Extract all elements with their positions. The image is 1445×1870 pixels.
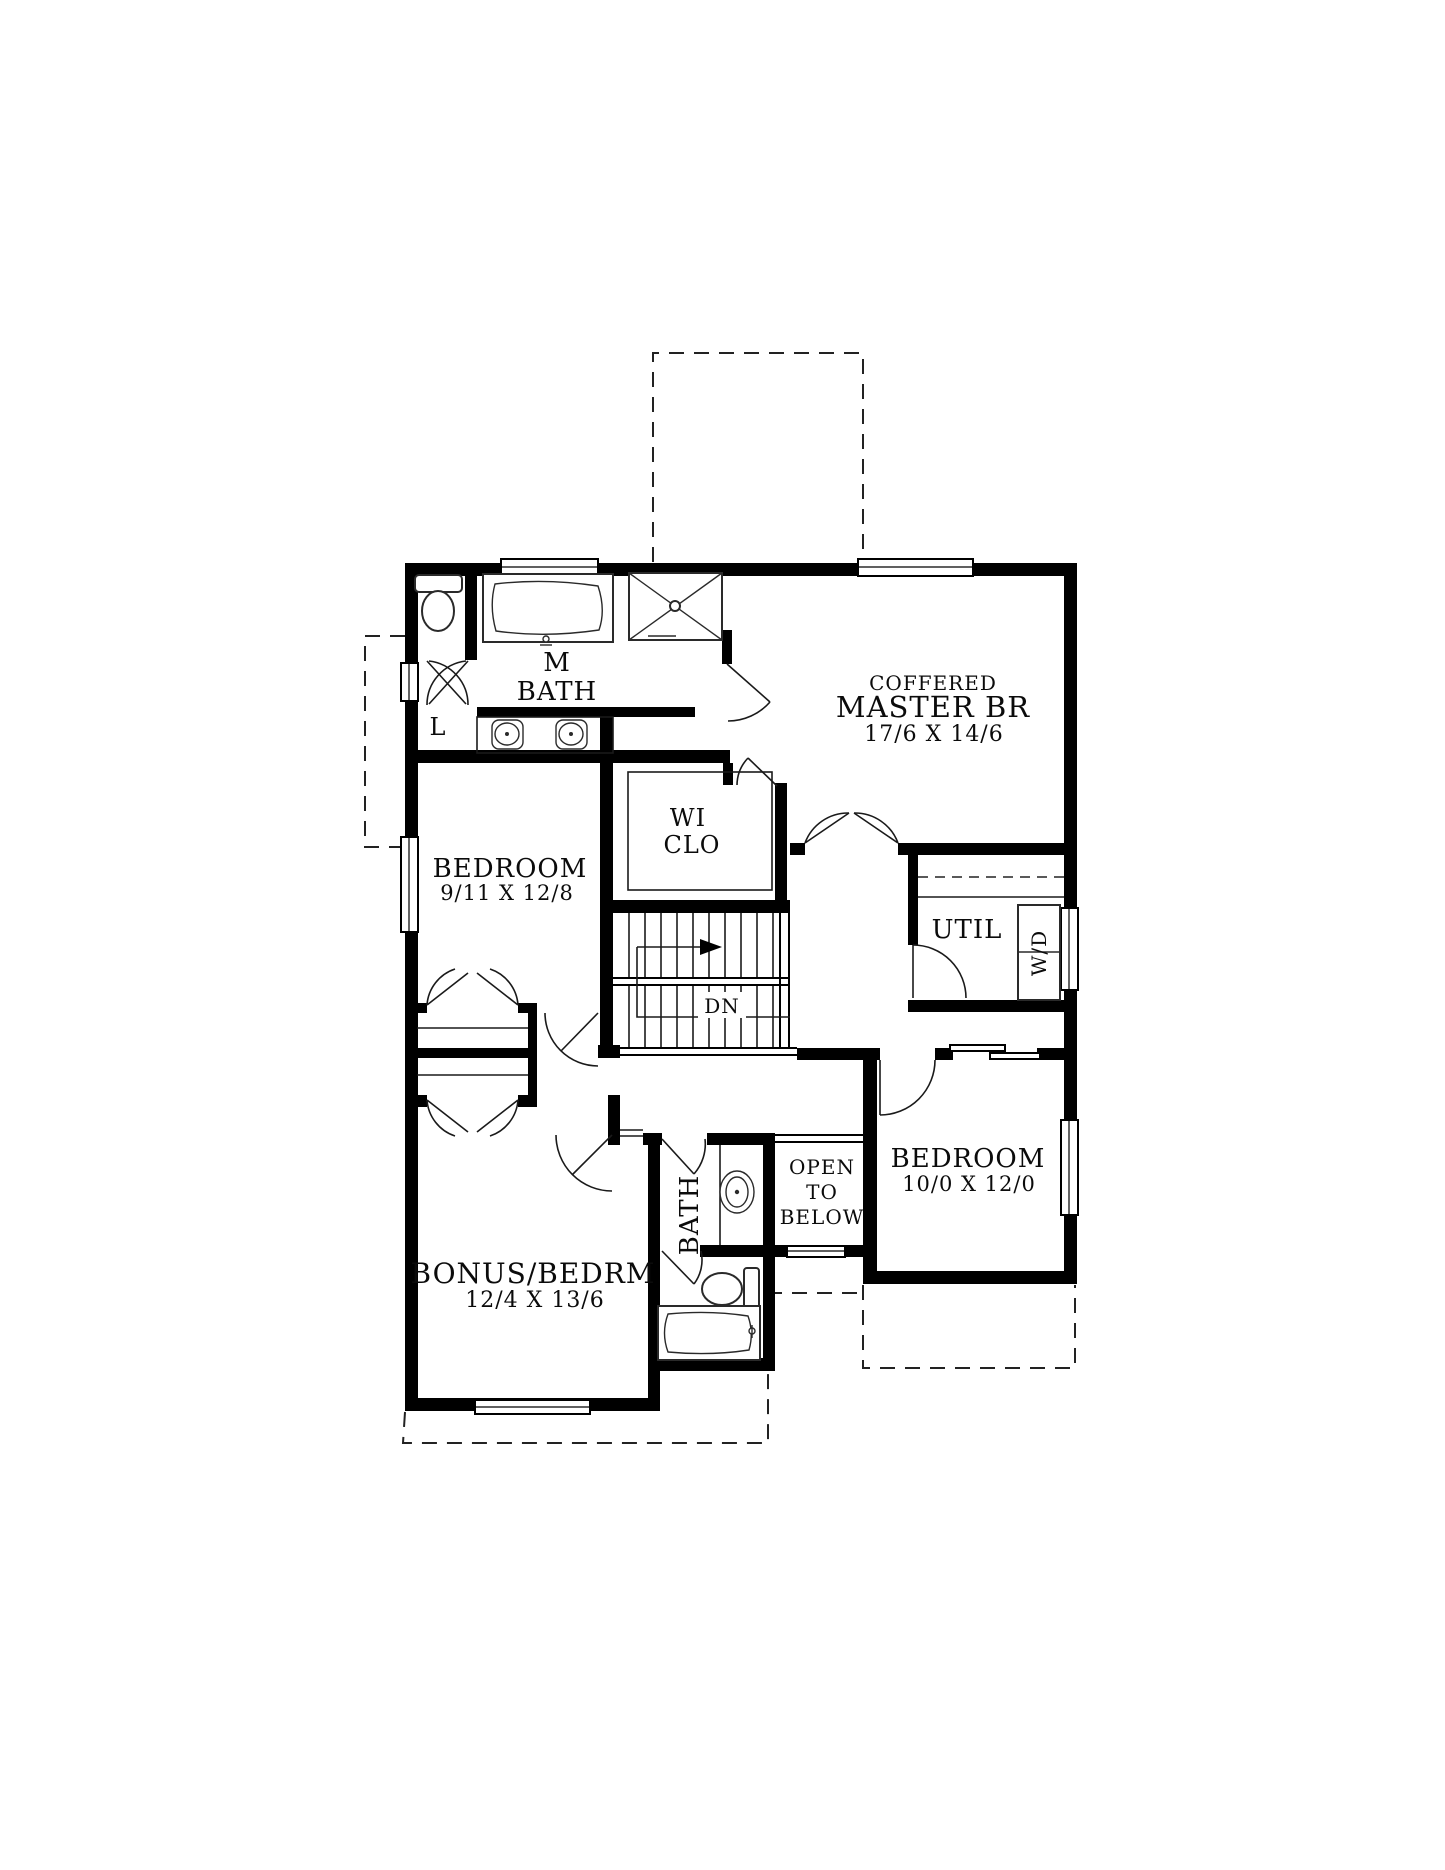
mbath-vanity	[477, 717, 613, 753]
linen-label: L	[430, 713, 447, 741]
door-arc	[913, 945, 966, 998]
door-arc	[429, 661, 468, 705]
upper-dashed-box	[653, 353, 863, 562]
door-arc	[727, 664, 770, 721]
window-icon	[787, 1246, 845, 1257]
stair-treads	[629, 913, 773, 1048]
sink-icon	[556, 720, 587, 749]
door-arc	[556, 1135, 612, 1191]
double-door-arcs	[805, 813, 898, 843]
open-below-line1: OPEN	[789, 1155, 855, 1179]
window-icon	[1061, 908, 1078, 990]
window-icon	[401, 663, 418, 701]
bath-vanity	[720, 1145, 754, 1245]
bedroom1-name-label: BEDROOM	[433, 854, 588, 884]
stairs-dn-label: DN	[704, 994, 740, 1018]
mbath-label-line1: M	[543, 648, 571, 678]
bathtub-icon	[483, 574, 613, 645]
mbath-label-line2: BATH	[517, 677, 597, 707]
closet-double-doors	[427, 969, 518, 1005]
stair-rails	[613, 913, 797, 1055]
wiclo-label-line2: CLO	[664, 831, 721, 859]
bedroom2-name-label: BEDROOM	[891, 1144, 1046, 1174]
door-arc	[880, 1060, 935, 1115]
sink-icon	[492, 720, 523, 749]
closet-double-doors	[427, 1100, 518, 1136]
window-icon	[475, 1400, 590, 1414]
left-dashed-box	[365, 636, 405, 847]
toilet-icon	[415, 575, 462, 631]
open-below-railing	[775, 1135, 863, 1142]
window-icon	[401, 837, 418, 932]
staircase	[613, 913, 797, 1055]
bedroom1-dims-label: 9/11 X 12/8	[440, 881, 574, 905]
door-arc	[545, 1013, 598, 1066]
bath-label: BATH	[675, 1175, 705, 1255]
floor-plan-page: COFFERED MASTER BR 17/6 X 14/6 M BATH WI…	[0, 0, 1445, 1870]
master-name-label: MASTER BR	[836, 690, 1030, 724]
bonus-name-label: BONUS/BEDRM	[411, 1257, 656, 1290]
washer-dryer-label: W/D	[1027, 930, 1051, 976]
open-below-line3: BELOW	[780, 1205, 865, 1229]
door-arc	[662, 1139, 705, 1174]
master-dims-label: 17/6 X 14/6	[864, 722, 1003, 747]
window-icon	[858, 559, 973, 576]
bathtub-icon	[658, 1306, 760, 1360]
wiclo-label-line1: WI	[670, 804, 706, 832]
shower-icon	[629, 573, 722, 640]
toilet-icon	[702, 1268, 759, 1310]
bedroom2-dims-label: 10/0 X 12/0	[902, 1172, 1036, 1196]
sink-icon	[720, 1171, 754, 1213]
lower-right-dashed-box	[863, 1285, 1075, 1368]
window-icon	[1061, 1120, 1078, 1215]
util-label: UTIL	[932, 915, 1003, 945]
open-below-line2: TO	[806, 1180, 838, 1204]
sliding-closet-doors	[950, 1045, 1040, 1059]
bonus-dims-label: 12/4 X 13/6	[465, 1288, 604, 1313]
floor-plan-drawing: COFFERED MASTER BR 17/6 X 14/6 M BATH WI…	[0, 0, 1445, 1870]
